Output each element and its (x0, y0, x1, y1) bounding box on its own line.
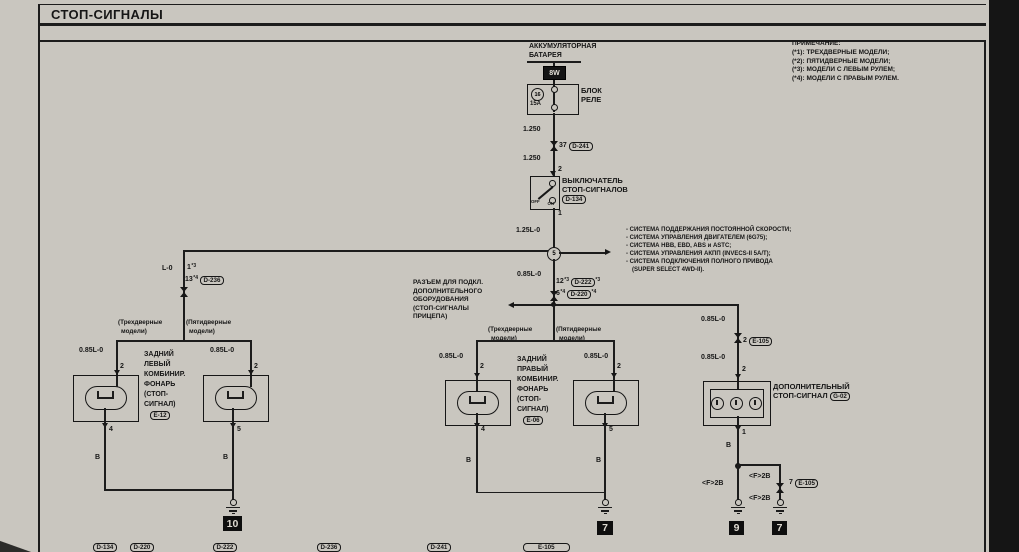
connector-ref: 7 E-105 (789, 479, 818, 488)
wire-label: L-0 (162, 265, 173, 273)
pin-number: 37 (559, 142, 567, 150)
bulb-filament (469, 396, 471, 403)
pin-number: 2 (120, 363, 124, 371)
wire (183, 250, 548, 252)
lamp-label: КОМБИНИР. (517, 376, 558, 384)
connector-code: D-222 (213, 543, 237, 552)
wire-label: 0.85L-0 (701, 354, 725, 362)
connector-code: D-241 (427, 543, 451, 552)
aux-stop-label: СТОП-СИГНАЛ G-02 (773, 392, 850, 401)
wire (604, 424, 606, 500)
trailer-label: ОБОРУДОВАНИЯ (413, 296, 469, 304)
pin-number: 12 (556, 278, 564, 286)
bulb-filament (754, 400, 756, 405)
wire-label: 0.85L-0 (584, 353, 608, 361)
pin-arrow (611, 373, 617, 378)
wire-label: 0.85L-0 (210, 347, 234, 355)
wire (553, 304, 555, 342)
fuse-number-circle: 16 (531, 88, 544, 101)
inline-connector-icon (734, 333, 742, 343)
trailer-label: ДОПОЛНИТЕЛЬНОГО (413, 288, 482, 296)
footnote-mark: *3 (564, 276, 569, 284)
wire-label: 0.85L-0 (79, 347, 103, 355)
wire (232, 420, 234, 500)
ground-icon (779, 513, 783, 514)
model-note: (Трехдверные (488, 326, 532, 334)
bulb-filament (242, 391, 244, 398)
frame-line (40, 40, 986, 42)
switch-off-label: OFF (531, 199, 540, 204)
wire (104, 420, 106, 491)
pin-number: 2 (254, 363, 258, 371)
lamp-label: ФОНАРЬ (517, 386, 548, 394)
model-note: модели) (189, 328, 215, 336)
bulb-icon (749, 397, 762, 410)
connector-code: E-06 (523, 416, 543, 425)
wire (737, 382, 739, 389)
switch-on-label: ON (548, 201, 554, 206)
connector-code: E-105 (749, 337, 773, 346)
connector-code: D-134 (562, 195, 586, 204)
connector-code: D-220 (567, 290, 591, 299)
wire (737, 416, 739, 424)
pin-number: 1 (558, 210, 562, 218)
wire (250, 376, 252, 387)
connector-code: E-105 (523, 543, 570, 552)
frame-line (984, 40, 986, 552)
ground-icon (734, 510, 742, 512)
bulb-filament (716, 400, 718, 405)
pin-number: 13 (185, 276, 193, 284)
system-ref: (SUPER SELECT 4WD-II). (632, 267, 704, 275)
pin-number: 2 (558, 166, 562, 174)
battery-label: АККУМУЛЯТОРНАЯ (529, 43, 596, 51)
bulb-icon (730, 397, 743, 410)
wire (104, 408, 106, 420)
pin-number: 2 (743, 337, 747, 345)
aux-stop-label: ДОПОЛНИТЕЛЬНЫЙ (773, 382, 850, 391)
wire (513, 304, 738, 306)
model-note: (Трехдверные (118, 319, 162, 327)
fuse-terminal (551, 86, 558, 93)
bulb-filament (227, 391, 229, 398)
bulb-filament (484, 396, 486, 403)
switch-label: СТОП-СИГНАЛОВ (562, 185, 628, 194)
lamp-label: (СТОП- (144, 391, 168, 399)
ground-icon (598, 507, 612, 509)
trailer-label: РАЗЪЕМ ДЛЯ ПОДКЛ. (413, 279, 483, 287)
frame-line (38, 4, 40, 552)
ground-icon (229, 510, 237, 512)
model-note: (Пятидверные (186, 319, 231, 327)
wire (737, 466, 739, 500)
ground-icon (731, 507, 745, 509)
wire-label: B (95, 454, 100, 462)
wire-label: B (726, 442, 731, 450)
wire (737, 424, 739, 466)
bulb-filament (735, 400, 737, 405)
bulb-icon (711, 397, 724, 410)
arrow-right-icon (605, 249, 611, 255)
connector-code: E-12 (150, 411, 170, 420)
pin-number: 1 (187, 264, 191, 272)
trailer-label: ПРИЦЕПА) (413, 313, 447, 321)
ground-icon (773, 507, 787, 509)
scan-shadow (0, 537, 42, 552)
wire-label: 1.250 (523, 155, 541, 163)
bulb-filament (112, 391, 114, 398)
wire-label: <F>2B (749, 495, 770, 503)
footnote-mark: *4 (560, 288, 565, 296)
pin-number: 5 (237, 426, 241, 434)
lamp-label: ПРАВЫЙ (517, 366, 548, 374)
pin-number: 2 (742, 366, 746, 374)
lamp-label: СИГНАЛ) (517, 406, 549, 414)
pin-number: 5 (609, 426, 613, 434)
connector-code: D-220 (130, 543, 154, 552)
wire (104, 489, 234, 491)
wire-label: 0.85L-0 (439, 353, 463, 361)
wire (476, 340, 615, 342)
connector-ref: 13*4 D-236 (185, 276, 224, 285)
wire (116, 376, 118, 387)
ground-ref-badge: 7 (772, 521, 787, 535)
lamp-label: (СТОП- (517, 396, 541, 404)
note-item: (*2): ПЯТИДВЕРНЫЕ МОДЕЛИ; (792, 58, 890, 66)
pin-arrow (735, 374, 741, 379)
arrow-left-icon (508, 302, 514, 308)
lamp-label: СИГНАЛ) (144, 401, 176, 409)
bulb-filament (612, 396, 614, 403)
connector-code: D-222 (571, 278, 595, 287)
wire (476, 381, 478, 391)
ground-icon (230, 499, 237, 506)
connector-code: D-241 (569, 142, 593, 151)
pin-number: 4 (481, 426, 485, 434)
fuse-rating: 15A (530, 101, 541, 109)
system-ref: - СИСТЕМА HBB, EBD, ABS и ASTC; (626, 243, 731, 251)
wire-label: 1.250 (523, 126, 541, 134)
wire (559, 252, 606, 254)
bulb-filament (597, 396, 599, 403)
notes-header: ПРИМЕЧАНИЕ: (792, 40, 841, 48)
pin-number: 4 (109, 426, 113, 434)
wire-code-badge: 8W (543, 66, 566, 80)
inline-connector-icon (550, 141, 558, 151)
relay-label: БЛОК (581, 86, 602, 95)
connector-code: D-236 (200, 276, 224, 285)
fuse-terminal (551, 104, 558, 111)
ground-icon (602, 499, 609, 506)
note-item: (*4): МОДЕЛИ С ПРАВЫМ РУЛЕМ. (792, 75, 899, 83)
wire (737, 304, 739, 382)
ground-ref-badge: 10 (223, 516, 242, 531)
ground-icon (777, 499, 784, 506)
connector-ref: 1*3 (187, 264, 196, 272)
system-ref: - СИСТЕМА УПРАВЛЕНИЯ ДВИГАТЕЛЕМ (6G75); (626, 235, 767, 243)
ground-ref-badge: 9 (729, 521, 744, 535)
connector-code: D-134 (93, 543, 117, 552)
footnote-mark: *3 (595, 276, 600, 284)
ground-icon (737, 513, 741, 514)
wire (476, 424, 478, 493)
wire (553, 208, 555, 248)
lamp-label: КОМБИНИР. (144, 371, 185, 379)
footnote-mark: *3 (191, 262, 196, 270)
lamp-label: ЛЕВЫЙ (144, 361, 171, 369)
ground-icon (601, 510, 609, 512)
wire-label: <F>2B (749, 473, 770, 481)
ground-icon (232, 513, 236, 514)
connector-ref: 37 D-241 (559, 142, 593, 151)
wire (232, 408, 234, 420)
title-underline (38, 23, 986, 26)
wire-label: B (596, 457, 601, 465)
page-title: СТОП-СИГНАЛЫ (51, 7, 163, 22)
wire-label: <F>2B (702, 480, 723, 488)
wire (737, 464, 781, 466)
ground-icon (735, 499, 742, 506)
pin-number: 7 (789, 479, 793, 487)
connector-code: G-02 (830, 392, 851, 401)
connector-code: E-105 (795, 479, 819, 488)
pin-number: 2 (480, 363, 484, 371)
wire-label: 0.85L-0 (517, 271, 541, 279)
wire-label: 0.85L-0 (701, 316, 725, 324)
wire-label: B (223, 454, 228, 462)
wire (476, 492, 606, 494)
model-note: модели) (121, 328, 147, 336)
ground-icon (776, 510, 784, 512)
wire-label: B (466, 457, 471, 465)
aux-stop-label-text: СТОП-СИГНАЛ (773, 392, 828, 400)
battery-label: БАТАРЕЯ (529, 52, 562, 60)
ground-icon (226, 507, 240, 509)
model-note: (Пятидверные (556, 326, 601, 334)
inline-connector-icon (776, 483, 784, 493)
footnote-mark: *4 (592, 288, 597, 296)
pin-number: 2 (617, 363, 621, 371)
note-item: (*1): ТРЕХДВЕРНЫЕ МОДЕЛИ; (792, 49, 889, 57)
switch-label: ВЫКЛЮЧАТЕЛЬ (562, 176, 623, 185)
bulb-filament (97, 391, 99, 398)
inline-connector-icon (180, 287, 188, 297)
pin-number: 1 (742, 429, 746, 437)
wire (116, 340, 252, 342)
lamp-label: ФОНАРЬ (144, 381, 175, 389)
wire (613, 381, 615, 391)
connector-ref: 6*4 D-220*4 (556, 290, 596, 299)
connector-code: D-236 (317, 543, 341, 552)
scan-edge-strip (989, 0, 1019, 552)
system-ref: - СИСТЕМА ПОДКЛЮЧЕНИЯ ПОЛНОГО ПРИВОДА (626, 259, 773, 267)
lamp-label: ЗАДНИЙ (144, 351, 174, 359)
connector-ref: 12*3 D-222*3 (556, 278, 600, 287)
footnote-mark: *4 (193, 274, 198, 282)
wire-label: 1.25L-0 (516, 227, 540, 235)
connector-ref: 2 E-105 (743, 337, 772, 346)
pin-arrow (550, 171, 556, 176)
trailer-label: (СТОП-СИГНАЛЫ (413, 305, 469, 313)
ground-icon (604, 513, 608, 514)
system-ref: - СИСТЕМА ПОДДЕРЖАНИЯ ПОСТОЯННОЙ СКОРОСТ… (626, 227, 791, 235)
inline-connector-icon (550, 291, 558, 301)
wiring-diagram-page: СТОП-СИГНАЛЫ ПРИМЕЧАНИЕ: (*1): ТРЕХДВЕРН… (0, 0, 1019, 552)
note-item: (*3): МОДЕЛИ С ЛЕВЫМ РУЛЕМ; (792, 66, 895, 74)
relay-label: РЕЛЕ (581, 95, 601, 104)
system-ref: - СИСТЕМА УПРАВЛЕНИЯ АКПП (INVECS-II 5A/… (626, 251, 771, 259)
pin-arrow (474, 373, 480, 378)
lamp-label: ЗАДНИЙ (517, 356, 547, 364)
frame-line (38, 4, 986, 5)
ground-ref-badge: 7 (597, 521, 613, 535)
